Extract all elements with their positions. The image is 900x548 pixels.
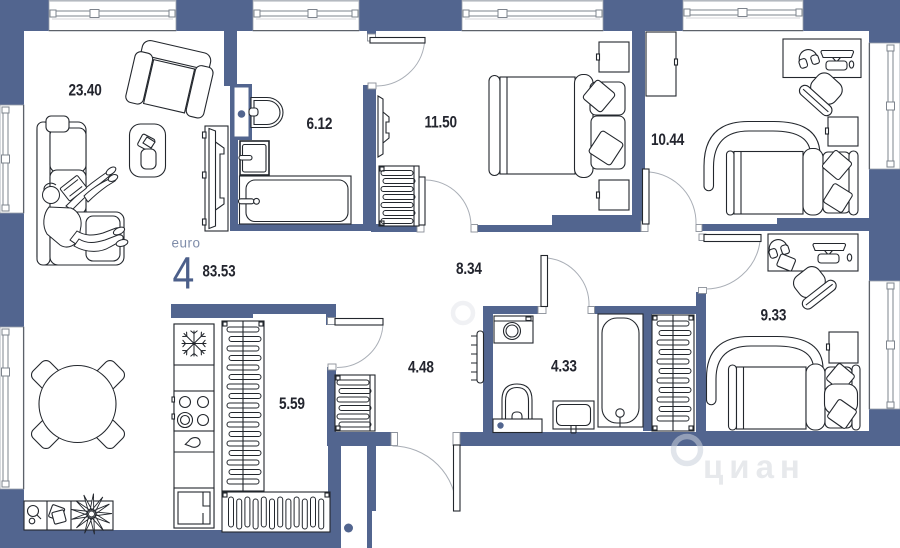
svg-text:23.40: 23.40 (69, 81, 102, 100)
svg-text:6.12: 6.12 (307, 114, 333, 133)
svg-text:9.33: 9.33 (761, 306, 787, 325)
svg-text:83.53: 83.53 (203, 262, 236, 281)
svg-text:4: 4 (173, 248, 195, 298)
svg-text:8.34: 8.34 (456, 259, 482, 278)
svg-text:10.44: 10.44 (651, 130, 685, 149)
svg-text:4.48: 4.48 (408, 358, 434, 377)
svg-text:5.59: 5.59 (279, 395, 305, 414)
svg-text:11.50: 11.50 (425, 113, 457, 132)
svg-text:циан: циан (703, 448, 806, 485)
svg-text:4.33: 4.33 (551, 357, 577, 376)
